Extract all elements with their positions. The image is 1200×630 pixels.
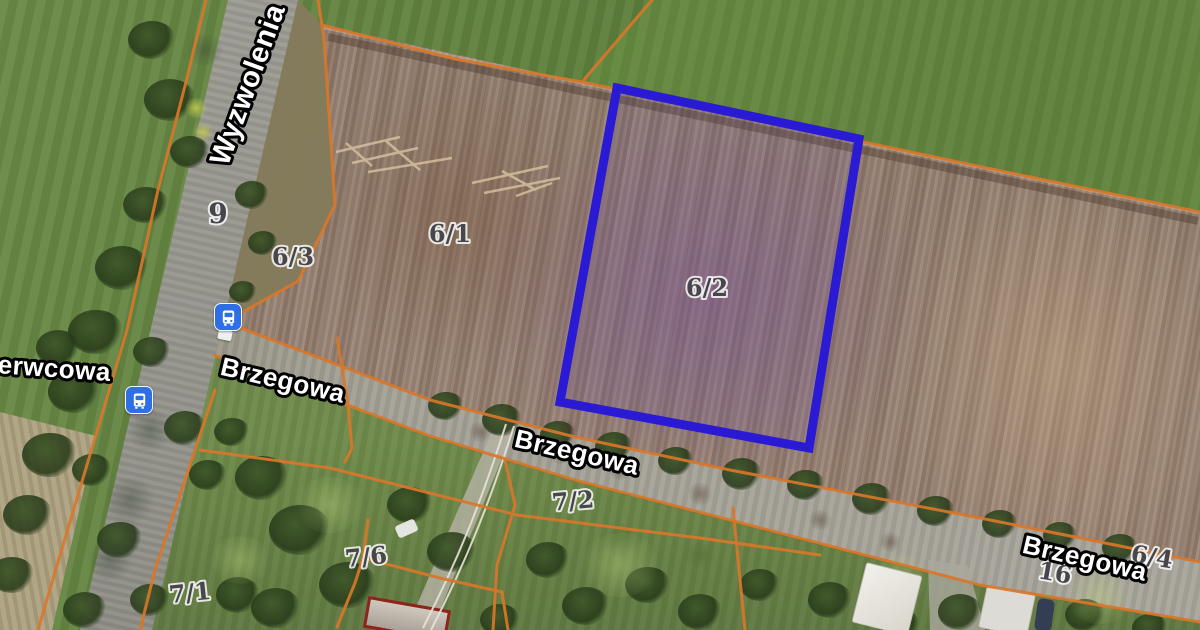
map-overlay: 9 6/3 6/1 6/2 7/2 7/6 7/1 16 6/4 Wyzwole… (0, 0, 1200, 630)
parcel-label-9: 9 (208, 197, 227, 230)
bus-stop-icon[interactable] (125, 386, 153, 414)
bus-glyph (218, 307, 239, 328)
parcel-label-7-2: 7/2 (551, 484, 596, 517)
street-label-brzegowa-center: Brzegowa (512, 423, 642, 481)
satellite-map[interactable]: 9 6/3 6/1 6/2 7/2 7/6 7/1 16 6/4 Wyzwole… (0, 0, 1200, 630)
field-scratch-marks (336, 137, 560, 196)
street-label-czerwcowa: Czerwcowa (0, 347, 112, 387)
bus-glyph (129, 390, 150, 411)
bus-stop-icon[interactable] (214, 303, 242, 331)
street-label-wyzwolenia: Wyzwolenia (204, 0, 292, 169)
highlighted-parcel-6-2[interactable] (560, 88, 859, 448)
driveway-track-lines (423, 424, 514, 630)
parcel-label-7-6: 7/6 (343, 540, 388, 573)
parcel-label-6-3: 6/3 (272, 242, 314, 271)
street-label-brzegowa-west: Brzegowa (218, 351, 348, 409)
parcel-label-6-2: 6/2 (686, 273, 728, 302)
parcel-label-7-1: 7/1 (167, 576, 212, 609)
parcel-label-6-1: 6/1 (429, 219, 471, 248)
